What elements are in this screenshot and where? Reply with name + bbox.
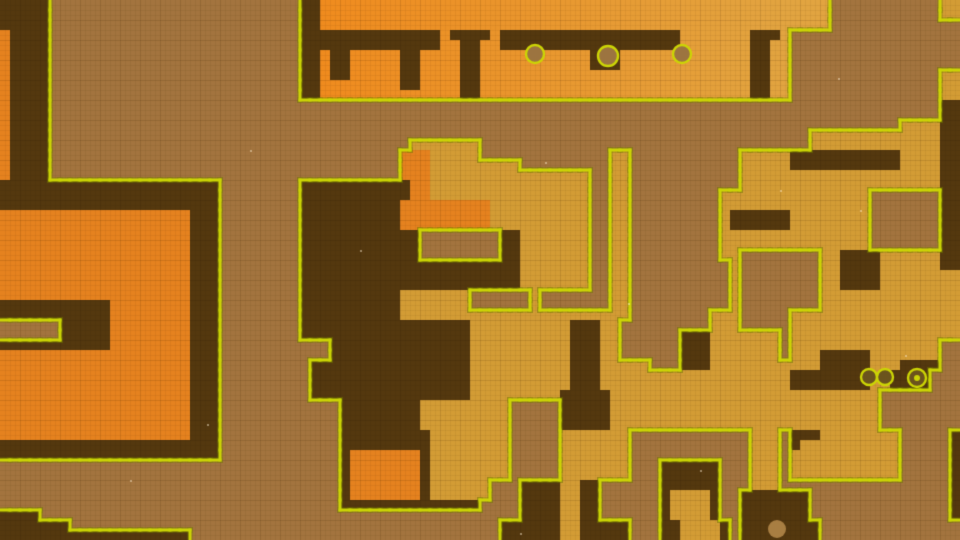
mine-map-canvas[interactable] (0, 0, 960, 540)
game-screen (0, 0, 960, 540)
